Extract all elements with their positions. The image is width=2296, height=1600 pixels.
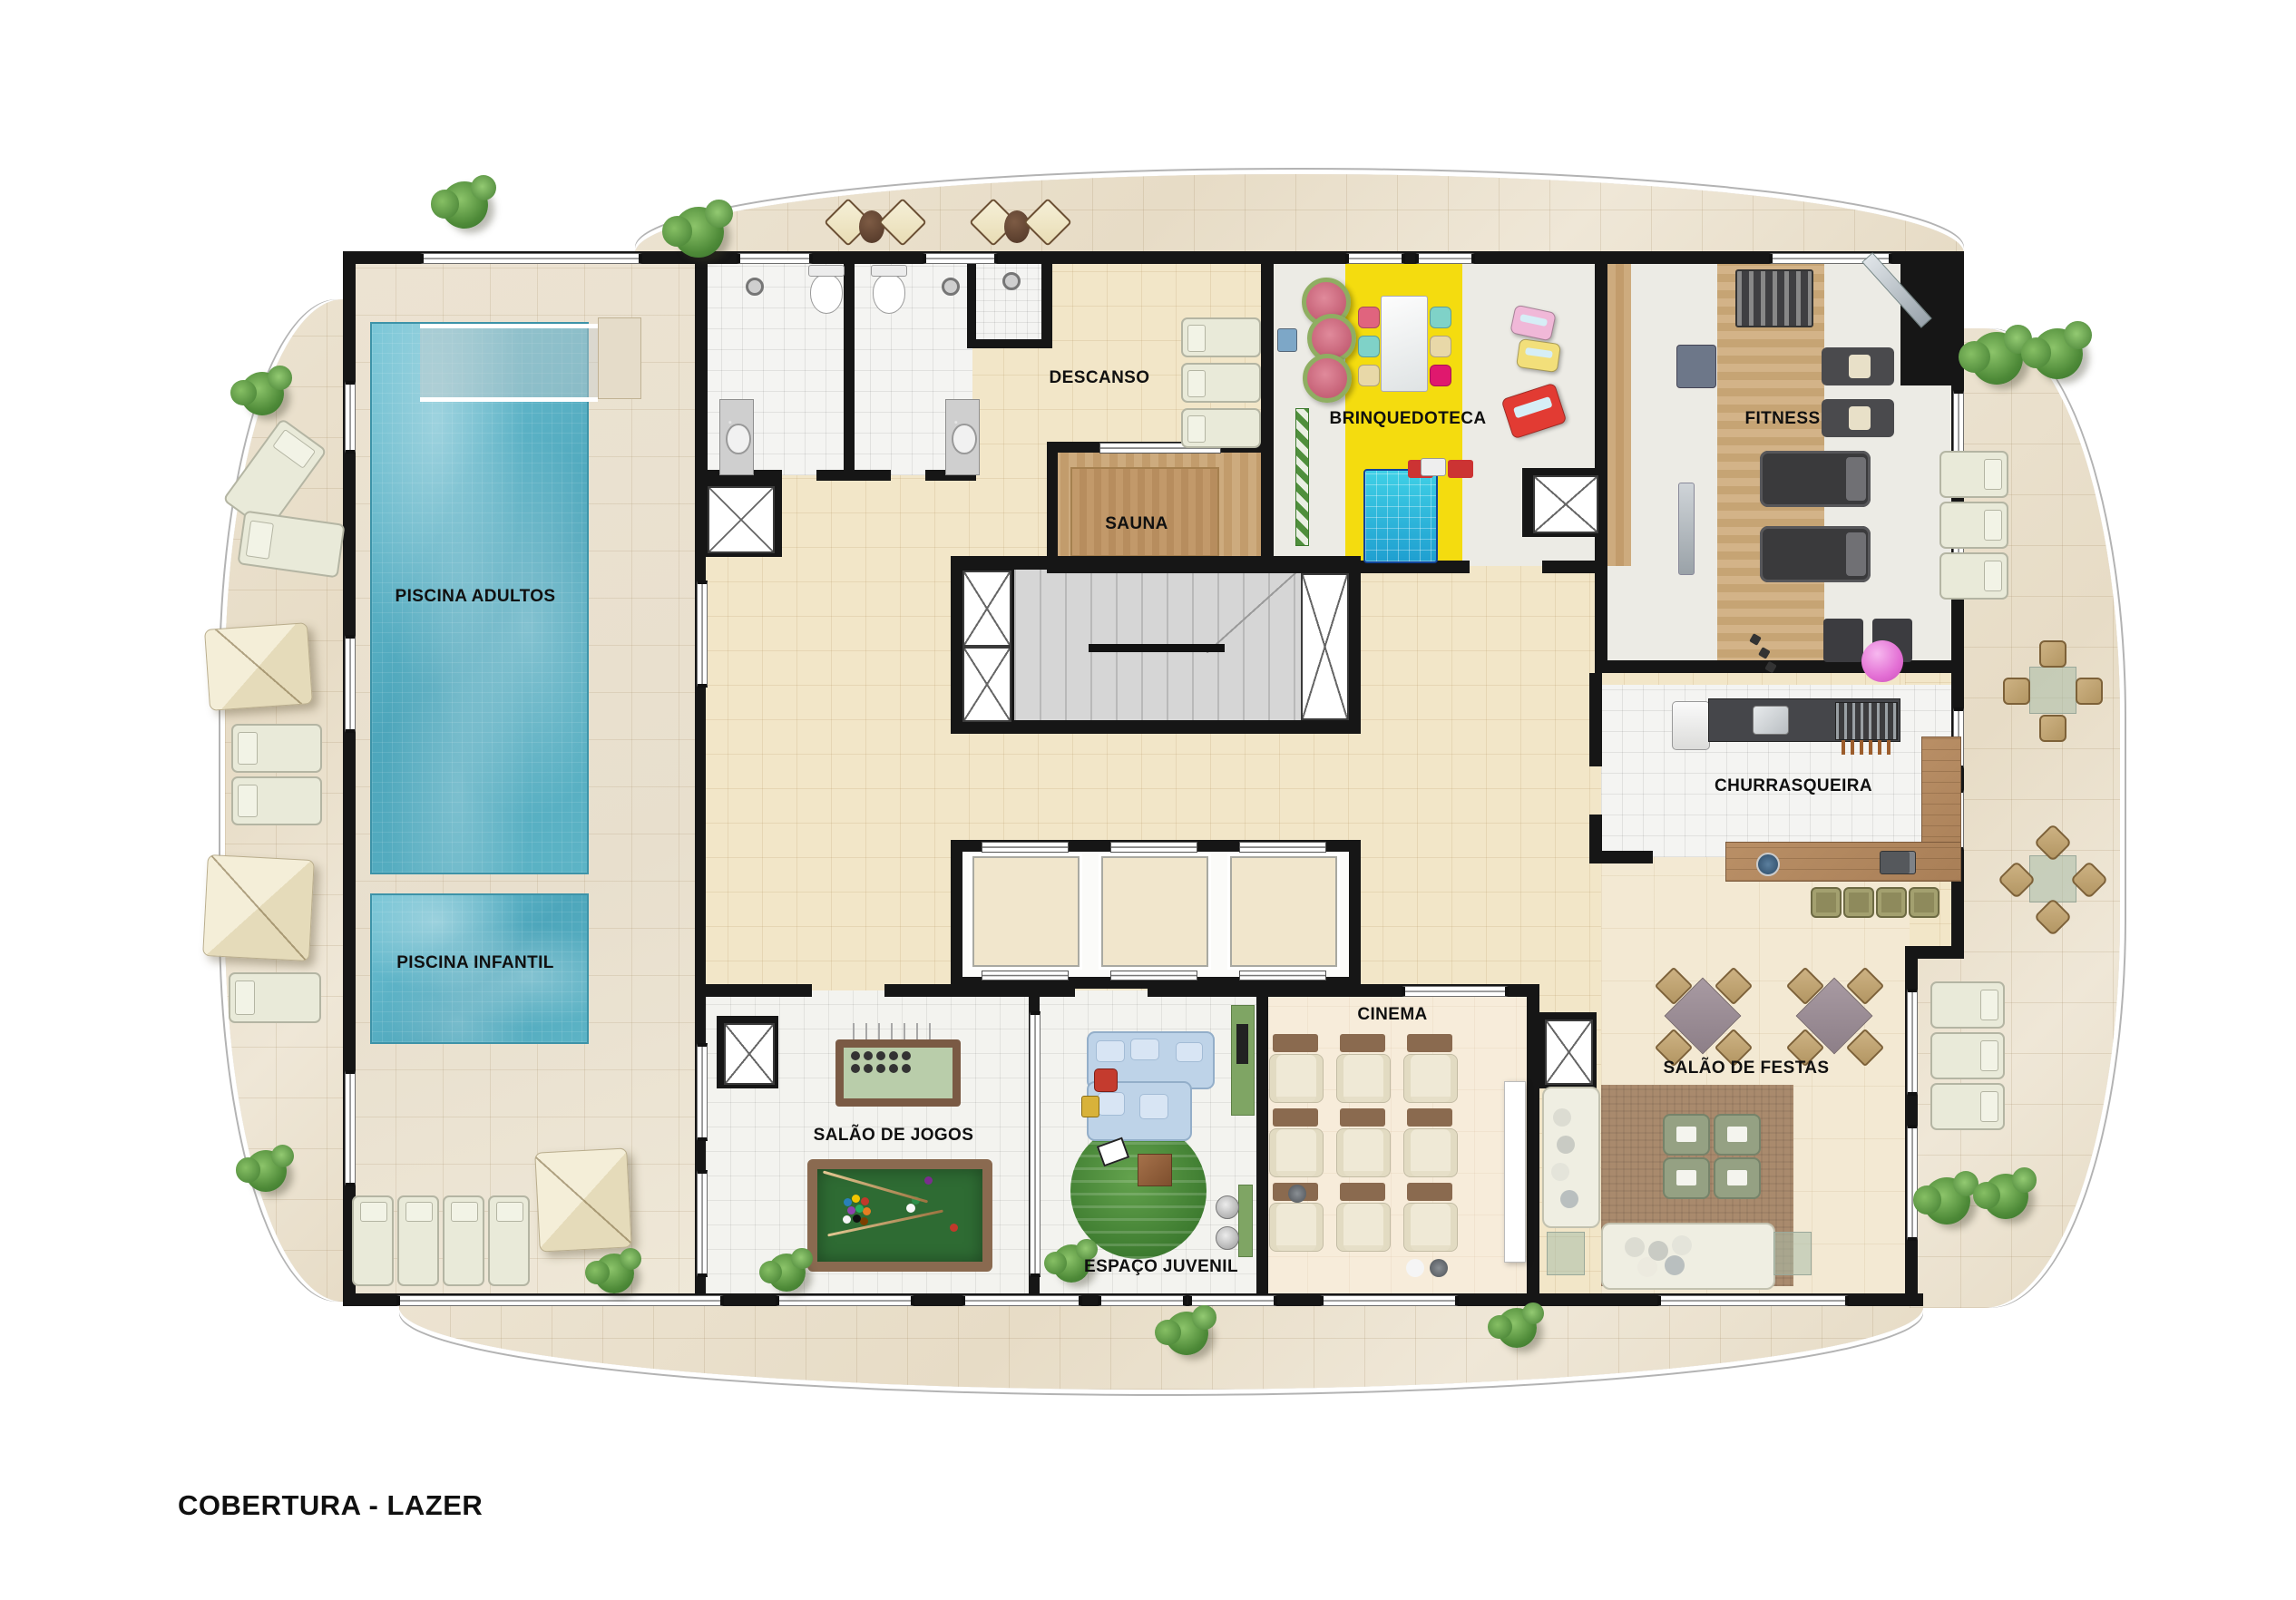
wall [695, 984, 812, 997]
plant-icon [441, 181, 488, 229]
cinema-seat [1403, 1054, 1458, 1103]
cinema-seat [1403, 1128, 1458, 1177]
cinema-seat-row [1340, 1183, 1385, 1201]
elevator-rear-sill [982, 971, 1069, 980]
side-table [1547, 1232, 1585, 1275]
mini-table [1421, 458, 1446, 476]
fridge [1672, 701, 1710, 750]
stair-direction-line [1207, 571, 1297, 653]
elevator-rear-sill [1110, 971, 1197, 980]
treadmill [1760, 526, 1871, 582]
cinema-seat-row [1273, 1034, 1318, 1052]
toy-robot [1081, 1096, 1099, 1117]
toilet-icon [810, 274, 843, 314]
sun-lounger [1930, 1032, 2005, 1079]
tv-cabinet [1231, 1005, 1255, 1116]
shaft-icon [708, 486, 775, 553]
shower-icon [746, 278, 764, 296]
label-cinema: CINEMA [1357, 1005, 1427, 1025]
sink-counter [719, 399, 754, 475]
wall [1047, 562, 1270, 573]
terrace-side-table [1004, 210, 1030, 243]
plant-icon [673, 207, 724, 258]
rest-lounger [1181, 408, 1261, 448]
wall [1261, 251, 1274, 573]
wall [1589, 851, 1653, 863]
plant-icon [1923, 1177, 1970, 1224]
label-brinquedoteca: BRINQUEDOTECA [1329, 409, 1486, 429]
elevator-door [982, 842, 1069, 853]
exercise-machine [1822, 347, 1894, 385]
kids-chair [1358, 365, 1380, 386]
plant-icon [1983, 1174, 2028, 1219]
cinema-seat [1403, 1203, 1458, 1252]
plant-icon [1970, 332, 2023, 385]
glass-wall [1030, 1011, 1041, 1277]
exercise-machine [1822, 399, 1894, 437]
media-cabinet [1238, 1185, 1253, 1257]
shaft-icon [962, 571, 1011, 647]
sun-lounger [229, 972, 321, 1023]
label-salao-de-festas: SALÃO DE FESTAS [1664, 1059, 1830, 1078]
cinema-seat [1336, 1054, 1391, 1103]
wall [1256, 984, 1268, 1306]
chair [2039, 715, 2066, 742]
cinema-seat [1269, 1128, 1324, 1177]
label-descanso: DESCANSO [1050, 368, 1150, 388]
fitness-wood-wall [1607, 258, 1631, 566]
stair-handrail [1089, 644, 1225, 652]
terrace-table [2029, 855, 2076, 902]
bar-stool [1811, 887, 1842, 918]
kids-chair [1358, 336, 1380, 357]
youth-rug [1070, 1123, 1207, 1259]
window [1188, 1295, 1277, 1306]
wall [816, 470, 891, 481]
barbell [1678, 483, 1695, 575]
cinema-side-table [1288, 1185, 1306, 1203]
elevator-cab [1230, 856, 1337, 967]
stool [1216, 1195, 1239, 1219]
wall [967, 339, 1052, 348]
sun-lounger [231, 776, 322, 825]
sun-lounger [352, 1195, 394, 1286]
kids-chair [1430, 307, 1451, 328]
cinema-seat [1336, 1203, 1391, 1252]
label-churrasqueira: CHURRASQUEIRA [1715, 776, 1872, 796]
window [776, 1295, 914, 1306]
rest-lounger [1181, 317, 1261, 357]
play-castle [1363, 469, 1438, 563]
sauna-bench [1070, 467, 1219, 557]
gym-mat [1823, 619, 1863, 662]
cinema-seat-row [1407, 1034, 1452, 1052]
shower-icon [942, 278, 960, 296]
terrace-table [2029, 667, 2076, 714]
pool-table [807, 1159, 992, 1272]
window [1415, 253, 1475, 264]
chair [2003, 678, 2030, 705]
label-espaco-juvenil: ESPAÇO JUVENIL [1084, 1257, 1238, 1277]
kids-table [1381, 296, 1428, 392]
plant-icon [1497, 1308, 1537, 1348]
pool-bridge [420, 324, 598, 402]
terrace-bottom [399, 1299, 1923, 1390]
plant-icon [240, 372, 284, 415]
floor-plan-page: PISCINA ADULTOS PISCINA INFANTIL DESCANS… [0, 0, 2296, 1600]
pool-platform [598, 317, 641, 399]
bar-stool [1909, 887, 1939, 918]
armchair [1663, 1157, 1710, 1199]
cinema-screen [1504, 1081, 1526, 1263]
sun-lounger [397, 1195, 439, 1286]
window [345, 381, 356, 454]
plant-icon [2032, 328, 2083, 379]
rest-lounger [1181, 363, 1261, 403]
armchair [1714, 1157, 1761, 1199]
skewers [1842, 740, 1845, 755]
window [1098, 1295, 1187, 1306]
label-piscina-infantil: PISCINA INFANTIL [396, 953, 554, 973]
label-sauna: SAUNA [1105, 514, 1168, 534]
wall-corner-block [1900, 251, 1964, 385]
sun-lounger [1939, 502, 2008, 549]
gaming-chair [1094, 1068, 1118, 1092]
bbq-sink [1753, 706, 1789, 735]
window [345, 1070, 356, 1186]
window [396, 1295, 724, 1306]
bar-stool [1843, 887, 1874, 918]
toy-car [1516, 338, 1561, 373]
sofa [1542, 1087, 1600, 1228]
elevator-cab [1101, 856, 1208, 967]
wall [1595, 251, 1607, 673]
kids-chair [1430, 336, 1451, 357]
wall [1542, 561, 1600, 573]
elevator-door [1110, 842, 1197, 853]
shower-icon [1002, 272, 1021, 290]
elevator-door [1239, 842, 1326, 853]
sun-lounger [1939, 552, 2008, 600]
plant-icon [1165, 1312, 1208, 1355]
elevator-icon [724, 1023, 775, 1085]
window [697, 1170, 708, 1277]
elevator-icon [1545, 1020, 1593, 1085]
kids-bench [1277, 328, 1297, 352]
sun-lounger [1930, 1083, 2005, 1130]
plant-icon [594, 1254, 634, 1293]
treadmill [1760, 451, 1871, 507]
wall [967, 258, 976, 348]
wall [1041, 251, 1052, 348]
wall [844, 258, 855, 481]
label-fitness: FITNESS [1744, 409, 1820, 429]
sink-counter [945, 399, 980, 475]
foosball-table [835, 1039, 961, 1107]
cinema-seat-row [1340, 1034, 1385, 1052]
plan-title: COBERTURA - LAZER [178, 1489, 483, 1522]
dumbbell-rack [1735, 269, 1813, 327]
exercise-ball [1861, 640, 1903, 682]
window [420, 253, 642, 264]
terrace-side-table [859, 210, 884, 243]
play-rug [1295, 408, 1309, 546]
window [923, 253, 998, 264]
parasol [204, 622, 313, 711]
cinema-seat-row [1407, 1108, 1452, 1127]
sun-lounger [231, 724, 322, 773]
shaft-icon [1533, 475, 1598, 533]
window [697, 1043, 708, 1141]
bar-stool [1876, 887, 1907, 918]
watermelon-pouf [1303, 354, 1352, 403]
wall [884, 984, 1075, 997]
window [1907, 1125, 1918, 1241]
chair [2039, 640, 2066, 668]
window [1320, 1295, 1459, 1306]
window-cinema [1402, 986, 1509, 997]
plant-icon [245, 1150, 287, 1192]
sun-lounger [443, 1195, 484, 1286]
cinema-seat [1336, 1128, 1391, 1177]
window [1657, 1295, 1849, 1306]
parasol [534, 1147, 632, 1252]
elevator-cab [972, 856, 1080, 967]
coffee-table-wood [1138, 1154, 1172, 1186]
cinema-side-table [1430, 1259, 1448, 1277]
bbq-grill [1835, 702, 1898, 740]
coffee-machine [1880, 851, 1916, 874]
label-salao-de-jogos: SALÃO DE JOGOS [814, 1126, 974, 1146]
wall [1047, 442, 1058, 573]
gym-bench [1676, 345, 1716, 388]
parasol [202, 854, 315, 961]
shaft-icon [1301, 573, 1349, 720]
label-piscina-adultos: PISCINA ADULTOS [395, 587, 555, 607]
cinema-seat-row [1407, 1183, 1452, 1201]
cinema-seat [1269, 1203, 1324, 1252]
kids-chair [1358, 307, 1380, 328]
sun-lounger [488, 1195, 530, 1286]
elevator-rear-sill [1239, 971, 1326, 980]
cinema-seat [1269, 1054, 1324, 1103]
plant-icon [767, 1254, 806, 1292]
wall [1595, 660, 1964, 673]
wall [1589, 673, 1602, 766]
sofa [1601, 1223, 1775, 1290]
cinema-seat-row [1340, 1108, 1385, 1127]
window [737, 253, 813, 264]
window [697, 580, 708, 688]
side-table [1773, 1232, 1812, 1275]
window [345, 635, 356, 733]
kids-chair [1430, 365, 1451, 386]
sun-lounger [1939, 451, 2008, 498]
armchair [1714, 1114, 1761, 1156]
serving-dish [1756, 853, 1780, 876]
sun-lounger [1930, 981, 2005, 1029]
toilet-icon [873, 274, 905, 314]
shower-stall [972, 258, 1047, 345]
window [1907, 989, 1918, 1096]
door-top-brinquedoteca [1345, 253, 1405, 264]
stool [1216, 1226, 1239, 1250]
shaft-icon [962, 647, 1011, 722]
armchair [1663, 1114, 1710, 1156]
cinema-seat-row [1273, 1108, 1318, 1127]
window [962, 1295, 1082, 1306]
chair [2076, 678, 2103, 705]
